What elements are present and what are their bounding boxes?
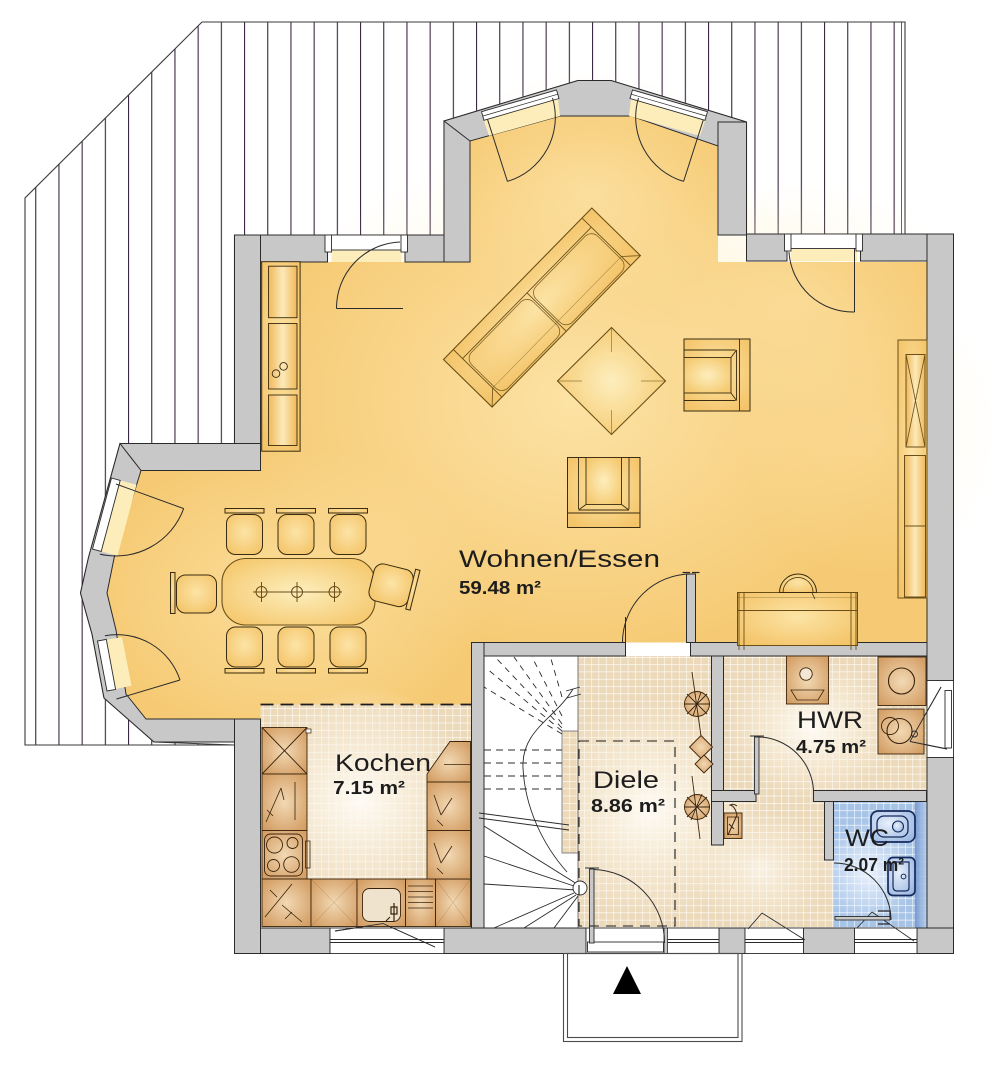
svg-text:Kochen: Kochen: [335, 750, 431, 777]
svg-text:4.75 m²: 4.75 m²: [796, 736, 866, 757]
svg-text:Wohnen/Essen: Wohnen/Essen: [459, 546, 660, 573]
svg-text:59.48 m²: 59.48 m²: [459, 577, 541, 598]
svg-text:2.07 m²: 2.07 m²: [844, 854, 904, 875]
svg-text:7.15 m²: 7.15 m²: [333, 777, 405, 798]
svg-text:WC: WC: [845, 825, 889, 852]
svg-text:Diele: Diele: [593, 767, 659, 794]
svg-text:HWR: HWR: [797, 707, 863, 734]
svg-text:8.86 m²: 8.86 m²: [591, 795, 665, 816]
